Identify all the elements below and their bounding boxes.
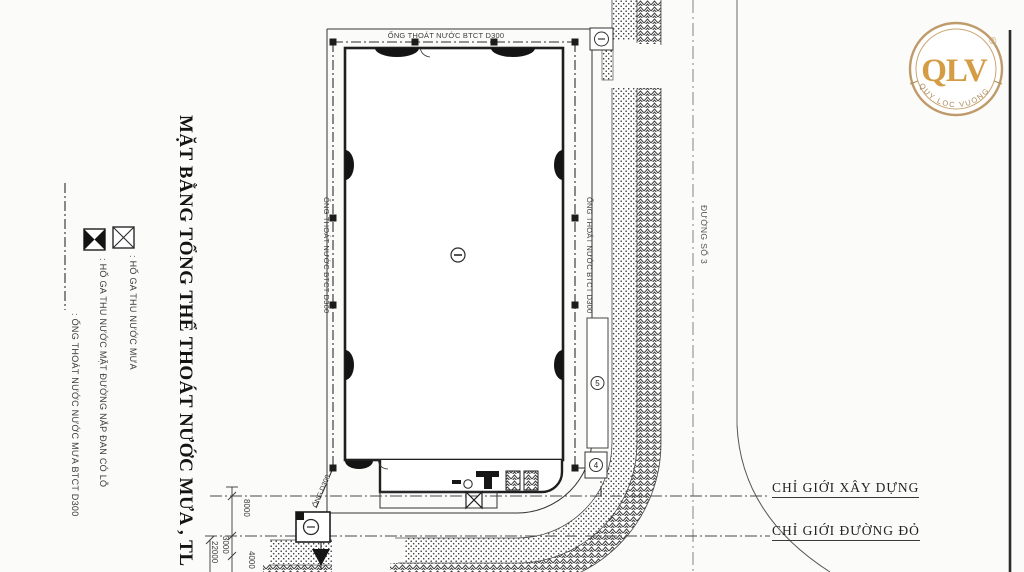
legend-item-label: : ỐNG THOÁT NƯỚC NƯỚC MƯA BTCT D300 [70,313,80,568]
pipe-label-top: ỐNG THOÁT NƯỚC BTCT D300 [348,31,544,40]
box-marker-label: 4 [594,461,599,470]
drawing-sheet: 5 4 QLV ® QUY LOC VUONG [0,0,1024,572]
dimension-label: 8000 [242,499,251,535]
corner-curb-arc [737,425,830,572]
construction-boundary-label: CHỈ GIỚI XÂY DỰNG [772,480,919,498]
red-boundary-label: CHỈ GIỚI ĐƯỜNG ĐỎ [772,523,920,541]
pipe-label-right: ỐNG THOÁT NƯỚC BTCT D300 [585,197,594,312]
dimension-label: 3000 [221,536,230,562]
company-logo: QLV ® QUY LOC VUONG [910,23,1002,115]
legend-item-label: : HỐ GA THU NƯỚC MẶT ĐƯỜNG NẮP ĐAN CÓ LỖ [98,258,108,548]
pipe-label-left: ỐNG THOÁT NƯỚC BTCT D300 [322,197,331,312]
registered-mark-icon: ® [989,36,997,47]
center-drain-icon [451,248,465,262]
road-name-label: ĐƯỜNG SỐ 3 [699,205,709,267]
legend-item-label: : HỐ GA THU NƯỚC MƯA [128,255,138,405]
dimension-label: 4000 [247,551,256,572]
dimension-label: 22000 [210,541,219,572]
valve-icon [466,492,482,508]
ramp-marker-label: 5 [595,379,600,388]
logo-monogram: QLV [921,53,988,89]
drawing-title: MẶT BẰNG TỔNG THỂ THOÁT NƯỚC MƯA , TL : … [174,115,196,553]
building-outline [345,48,563,508]
